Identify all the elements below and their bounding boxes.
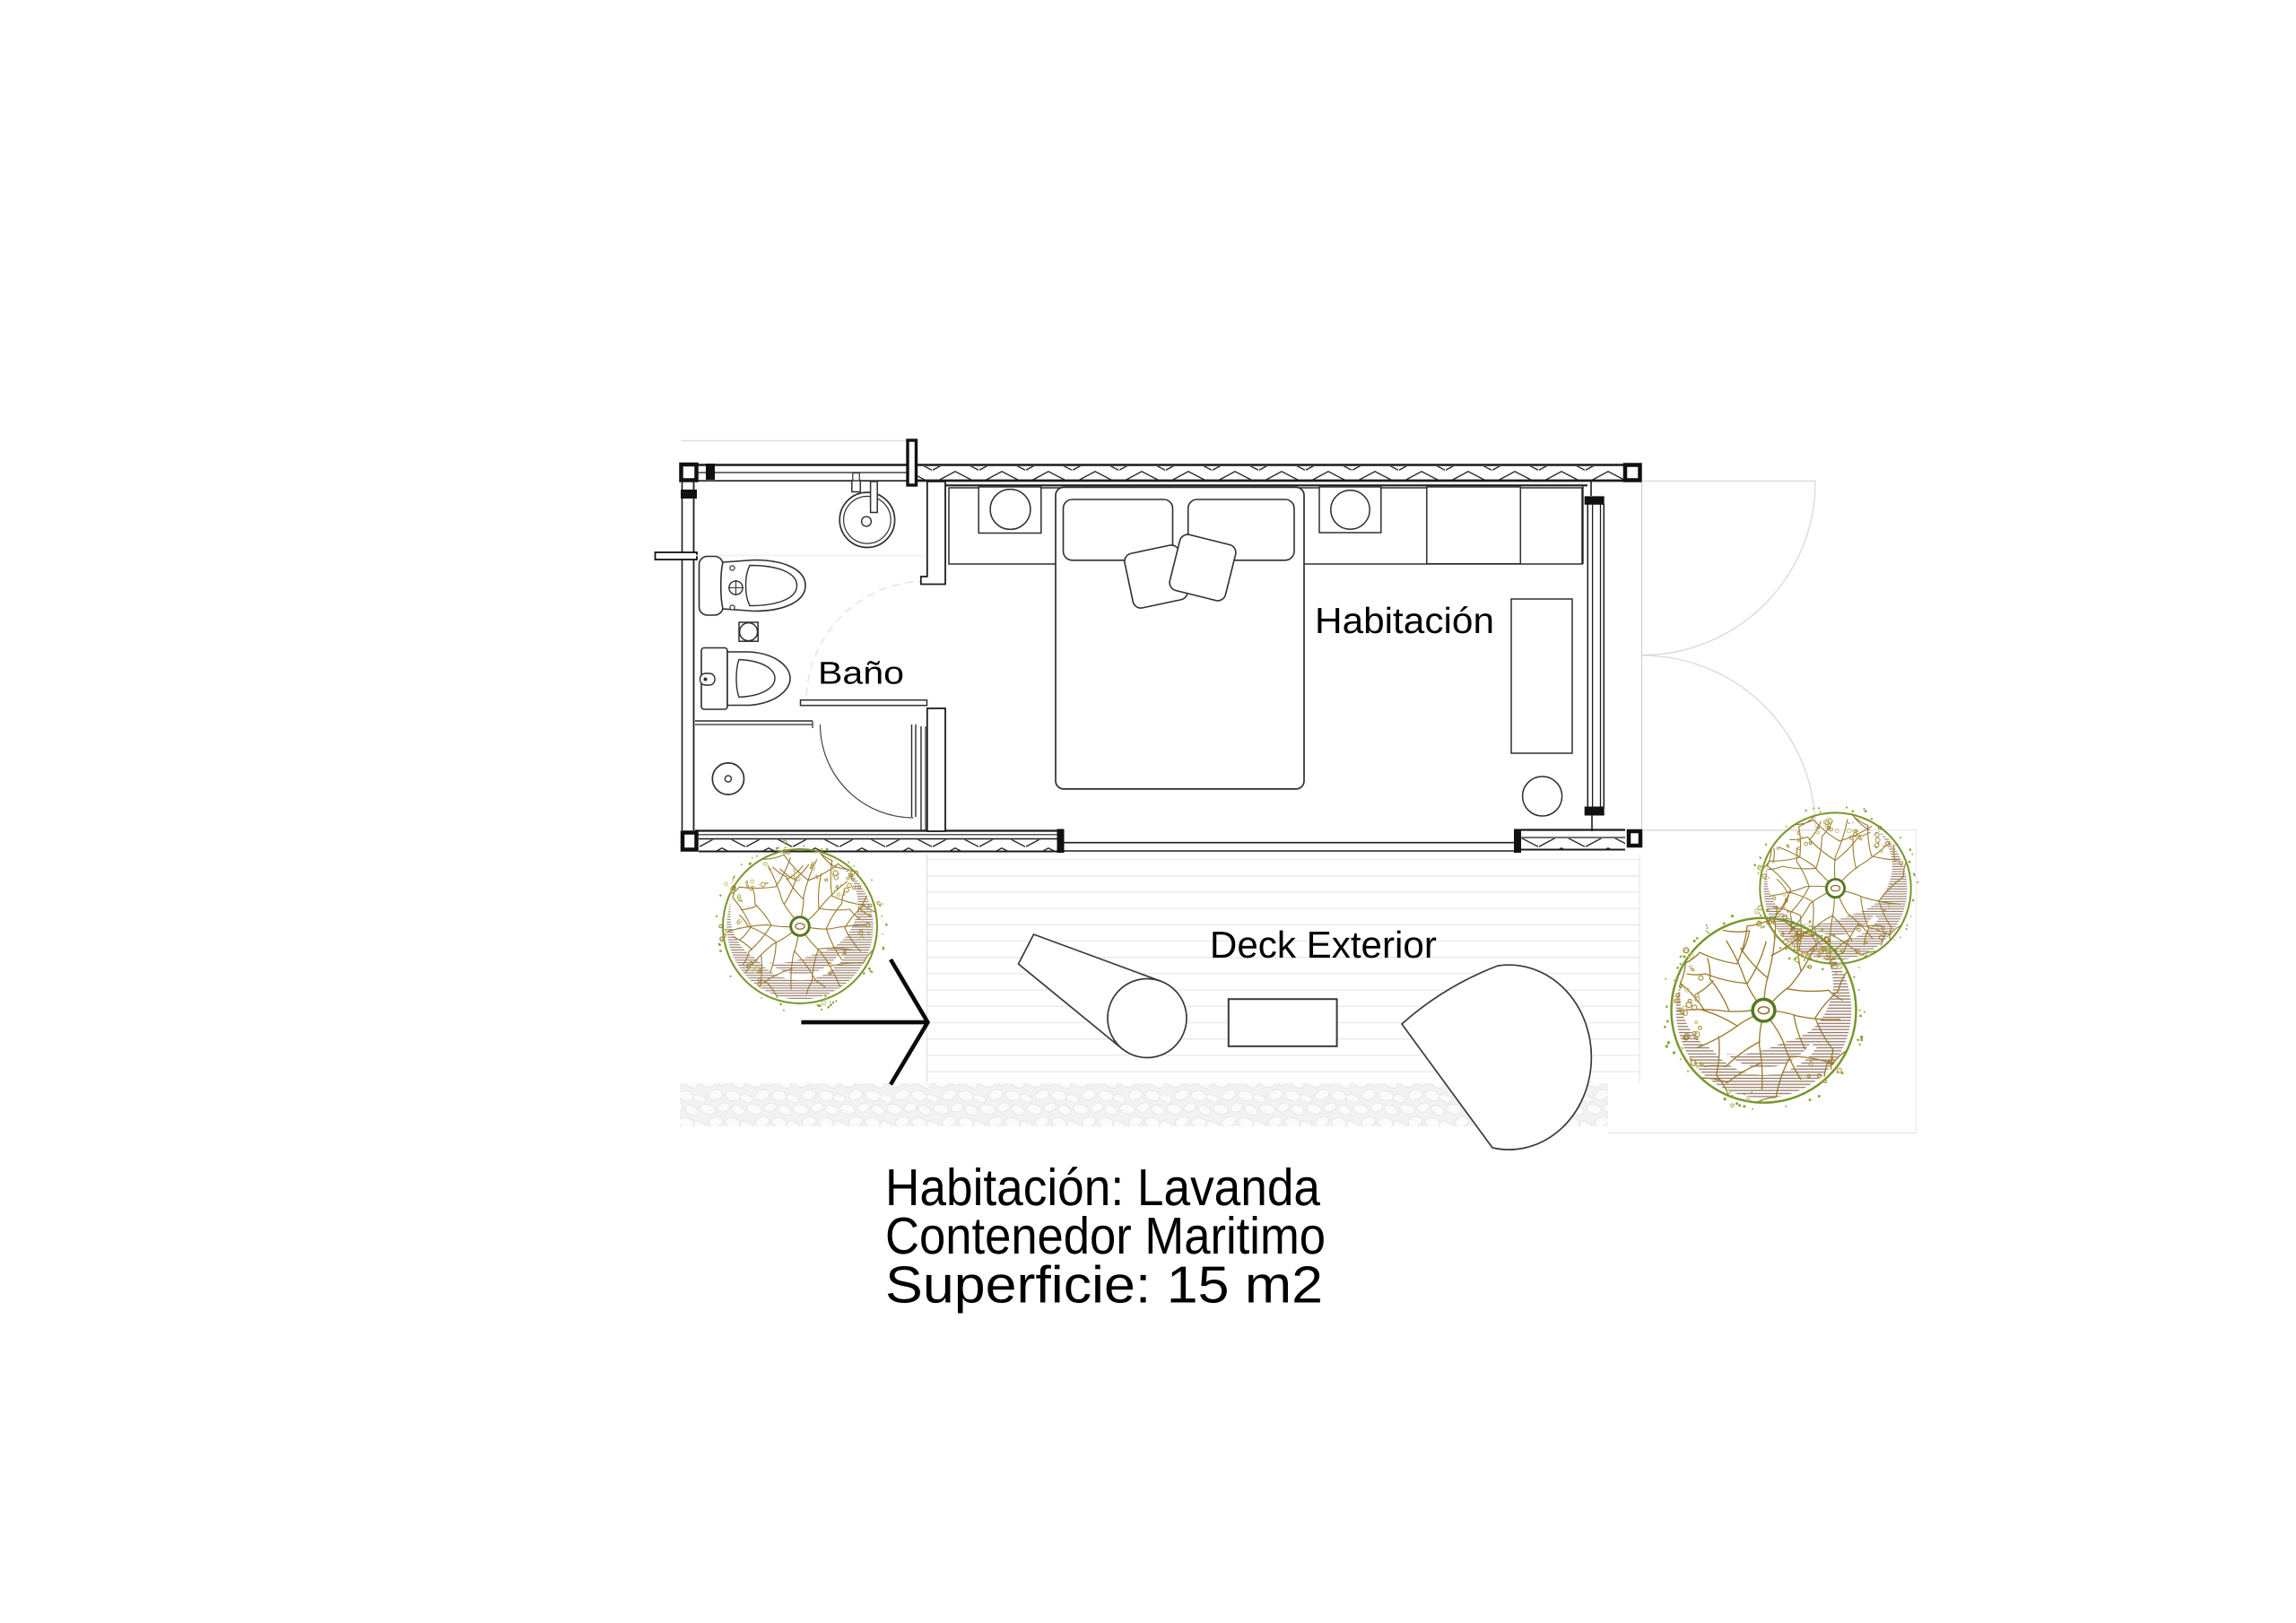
svg-text:Superficie: 15 m2: Superficie: 15 m2 <box>885 1255 1323 1314</box>
svg-text:Baño: Baño <box>818 656 904 691</box>
svg-text:Deck Exterior: Deck Exterior <box>1210 924 1437 966</box>
svg-text:Habitación: Habitación <box>1315 600 1494 641</box>
